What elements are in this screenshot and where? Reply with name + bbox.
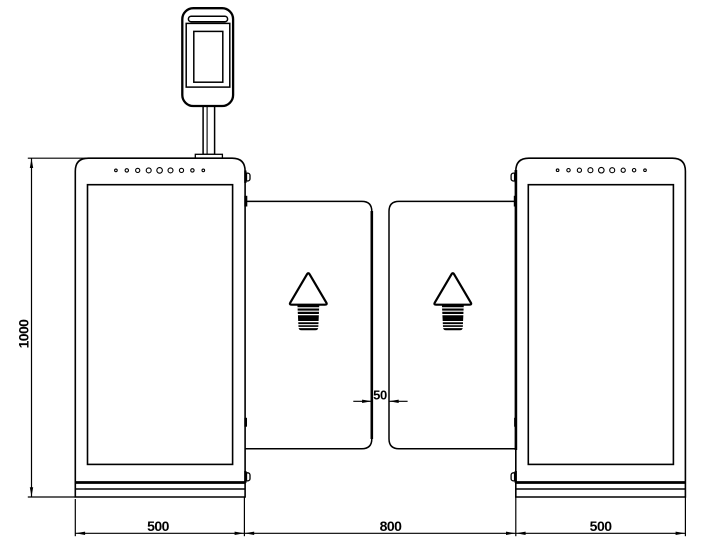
svg-text:50: 50: [373, 387, 387, 402]
svg-text:1000: 1000: [16, 319, 32, 349]
svg-text:800: 800: [380, 518, 403, 534]
svg-text:500: 500: [147, 518, 170, 534]
svg-text:500: 500: [590, 518, 613, 534]
